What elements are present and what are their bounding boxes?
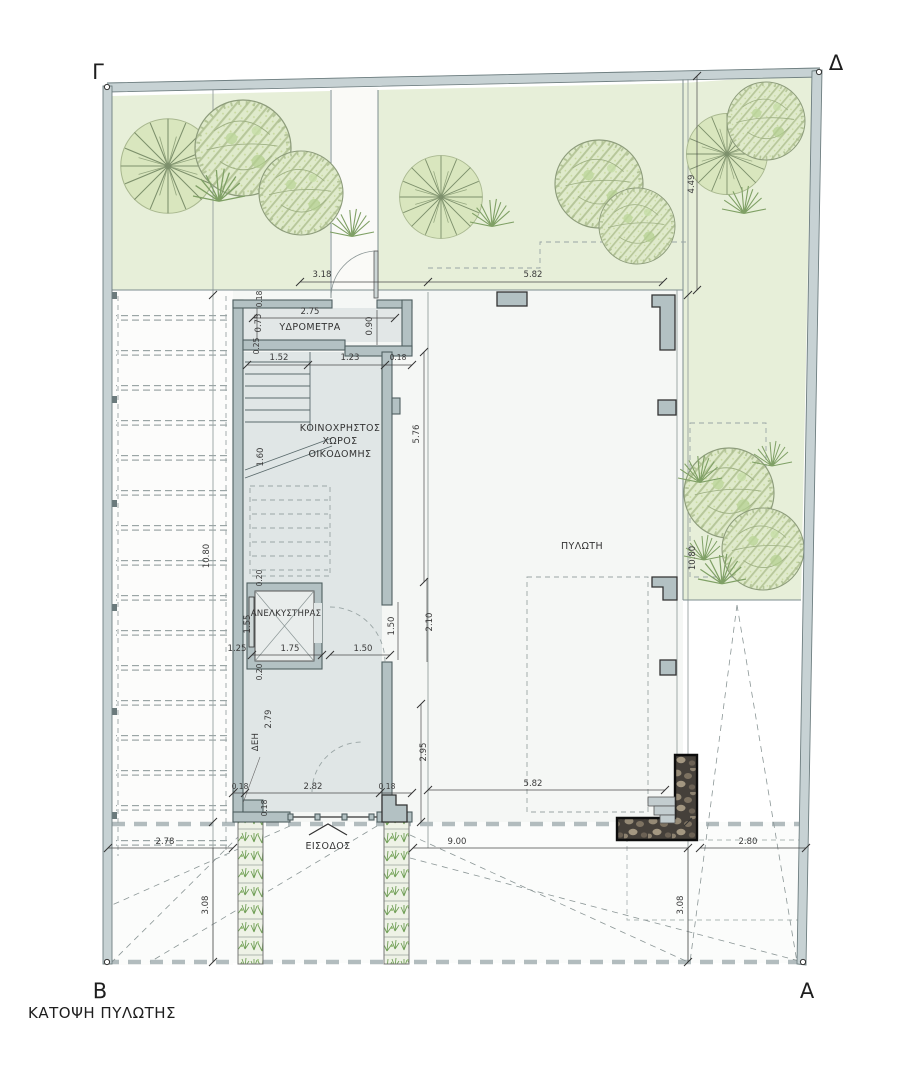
walkway-door-leaf [374,251,378,298]
dim-wall-lobby-left: 0.18 [232,782,249,791]
survey-point-beta [104,959,109,964]
dim-pilotis-top: 5.82 [524,270,543,280]
dim-right-garden-length: 10.80 [688,546,698,570]
dim-right-parking-width: 2.80 [739,837,758,847]
label-water-meters: ΥΔΡΟΜΕΤΡΑ [278,322,340,333]
label-common-area-1: ΚΟΙΝΟΧΡΗΣΤΟΣ [300,423,381,434]
dim-stair-run: 1.60 [256,448,266,467]
label-entrance: ΕΙΣΟΔΟΣ [305,841,350,852]
drawing-title: ΚΑΤΟΨΗ ΠΥΛΩΤΗΣ [28,1004,176,1022]
dim-shaft-wall-top: 0.20 [255,569,264,586]
dim-water-room-left: 0.75 [254,314,264,333]
corner-label-gamma: Γ [92,60,104,84]
left-parking-rows [110,292,228,856]
corner-label-delta: Δ [829,51,844,75]
label-pilotis: ΠΥΛΩΤΗ [561,541,603,552]
survey-point-alpha [800,959,805,964]
dim-left-setback: 3.08 [201,896,211,915]
survey-point-delta [816,69,821,74]
label-common-area-3: ΟΙΚΟΔΟΜΗΣ [309,449,372,460]
dim-wall-left: 0.25 [252,337,261,354]
dim-door-swing: 1.50 [387,617,397,636]
elevator-shaft [247,583,322,669]
dim-elevator-offset: 1.25 [228,644,247,654]
dim-lobby-width: 2.82 [304,782,323,792]
dim-stair-flight: 1.52 [270,353,289,363]
label-electrical: ΔΕΗ [251,733,261,751]
dim-water-room-right: 0.90 [365,317,375,336]
corner-label-alpha: Α [800,979,815,1003]
dim-lobby-depth: 2.95 [419,743,429,762]
dim-water-room-width: 2.75 [301,307,320,317]
survey-point-gamma [104,84,109,89]
dim-elevator-width: 1.75 [281,644,300,654]
dim-elevator-depth: 1.55 [243,615,253,634]
corner-label-beta: Β [93,979,107,1003]
dim-stair-landing: 1.23 [341,353,360,363]
dim-wall-top: 0.18 [255,290,264,307]
floor-plan-page: Γ Δ Β Α ΚΑΤΟΨΗ ΠΥΛΩΤΗΣ ΥΔΡΟΜΕΤΡΑ ΚΟΙΝΟΧΡ… [0,0,900,1080]
dim-driveway-width: 9.00 [448,837,467,847]
dim-walkway-front: 3.18 [313,270,332,280]
dim-pilotis-bottom: 5.82 [524,779,543,789]
dim-right-garden-depth: 4.49 [687,175,697,194]
dim-common-area-depth: 5.76 [412,425,422,444]
label-common-area-2: ΧΩΡΟΣ [323,436,358,447]
dim-right-setback: 3.08 [676,896,686,915]
dim-deh-niche: 2.79 [264,710,274,729]
dim-left-garden-length: 10.80 [202,544,212,568]
label-elevator: ΑΝΕΛΚΥΣΤΗΡΑΣ [251,609,322,619]
dim-shaft-wall-bottom: 0.20 [255,663,264,680]
dim-lobby-bay: 2.10 [425,613,435,632]
dim-entrance-wall: 0.18 [260,799,269,816]
dim-door-opening: 1.50 [354,644,373,654]
dim-wall-stair: 0.18 [390,353,407,362]
dim-wall-lobby-right: 0.18 [379,782,396,791]
floor-plan-drawing: Γ Δ Β Α ΚΑΤΟΨΗ ΠΥΛΩΤΗΣ ΥΔΡΟΜΕΤΡΑ ΚΟΙΝΟΧΡ… [0,0,900,1080]
dim-left-parking-width: 2.78 [156,837,175,847]
